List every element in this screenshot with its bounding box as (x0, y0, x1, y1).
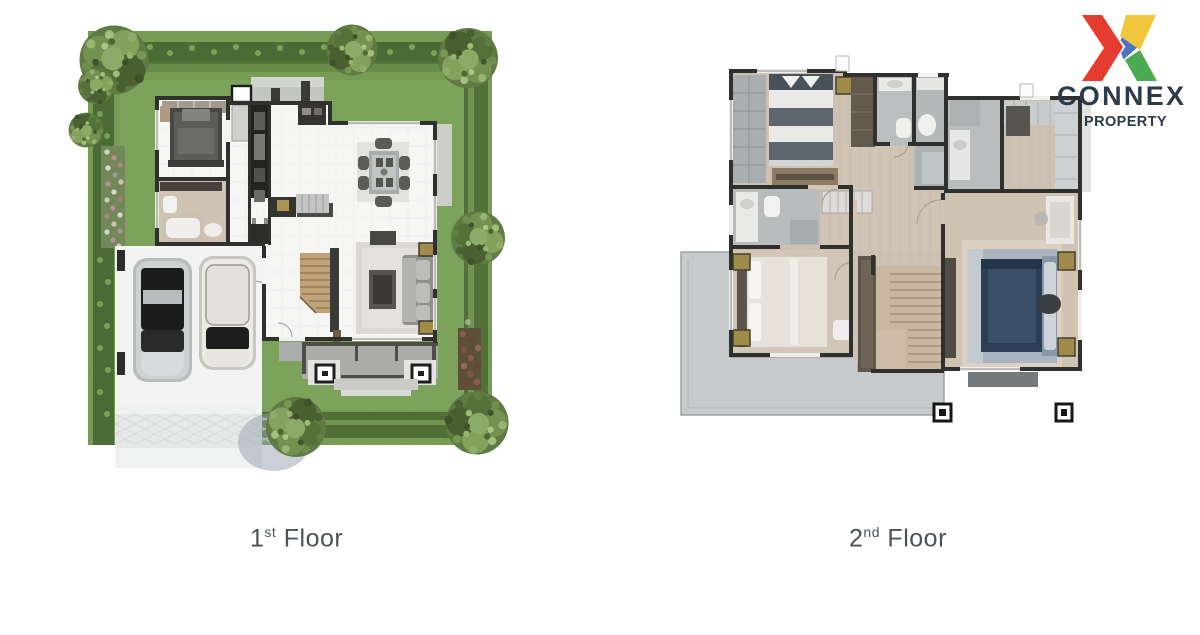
svg-text:CONNEX: CONNEX (1057, 81, 1186, 111)
svg-text:PROPERTY: PROPERTY (1084, 114, 1167, 130)
